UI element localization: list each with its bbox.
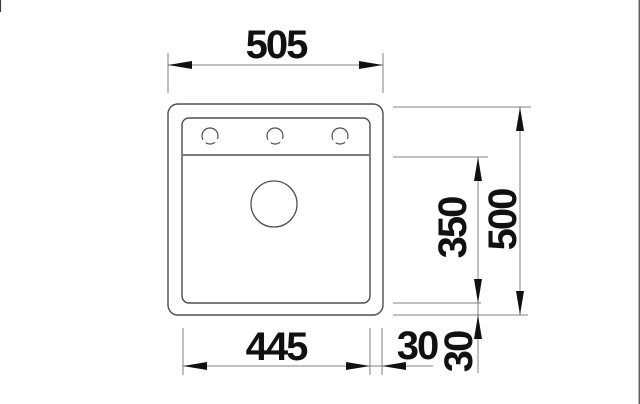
dim-bottom-rim-label: 30 [439,332,479,373]
dim-bowl-depth-label: 350 [433,198,473,259]
arrow-overall-width-right [359,61,383,69]
tap-hole-right [332,128,348,144]
sink-dimension-drawing [0,0,640,404]
arrow-bowl-depth-top [474,157,482,181]
arrow-bowl-width-left [183,362,207,370]
tap-hole-left [202,128,218,144]
technical-drawing-canvas: 505 500 350 445 30 30 [0,0,640,404]
sink-outline-group [168,104,383,315]
arrow-overall-width-left [168,61,192,69]
sink-inner-rim-outline [182,118,370,303]
arrow-overall-depth-top [516,107,524,131]
arrow-bowl-depth-bottom [474,279,482,303]
dim-overall-width-label: 505 [246,25,307,65]
sink-outer-outline [168,104,383,315]
arrow-overall-depth-bottom [516,291,524,315]
tap-hole-center [267,128,283,144]
dim-overall-depth-label: 500 [483,190,523,251]
drain-circle [251,181,297,227]
arrow-bowl-width-right [346,362,370,370]
dim-side-rim-label: 30 [397,326,438,366]
dim-bowl-width-label: 445 [246,327,307,367]
